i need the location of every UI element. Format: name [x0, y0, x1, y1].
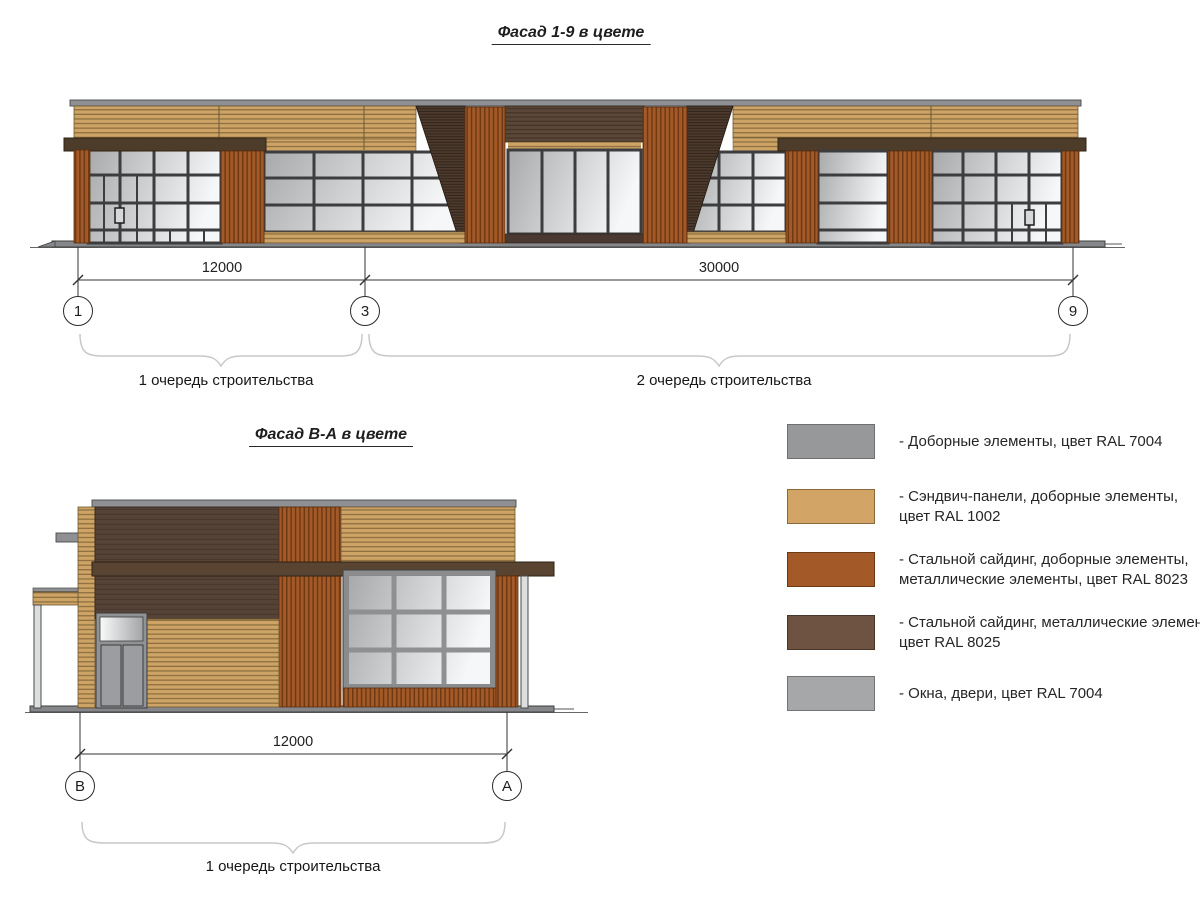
legend-row-ral8025: - Стальной сайдинг, металлические элемен…: [787, 613, 1200, 652]
legend-swatch-ral8023: [787, 552, 875, 587]
left-canopy: [33, 588, 78, 708]
legend-swatch-windows-ral7004: [787, 676, 875, 711]
big-window: [343, 570, 496, 690]
legend-swatch-ral1002: [787, 489, 875, 524]
legend-row-ral8023: - Стальной сайдинг, доборные элементы, м…: [787, 550, 1189, 589]
legend-label: металлические элементы, цвет RAL 8023: [899, 570, 1189, 590]
facade-b-a-elevation: [25, 500, 588, 713]
grid-axis-bubble-1: 1: [63, 296, 93, 326]
dimension-30000-main: 30000: [699, 260, 739, 276]
phase-1-label-side: 1 очередь строительства: [206, 858, 381, 875]
facade-side-title: Фасад В-А в цвете: [249, 426, 413, 447]
page: { "titles": { "facade_main": "Фасад 1-9 …: [0, 0, 1200, 900]
grid-axis-bubble-9: 9: [1058, 296, 1088, 326]
phase-brace-facade-2: [82, 822, 505, 853]
legend-label: - Стальной сайдинг, доборные элементы,: [899, 550, 1189, 570]
legend-swatch-ral8025: [787, 615, 875, 650]
canopy-left: [64, 138, 266, 151]
legend-row-windows-ral7004: - Окна, двери, цвет RAL 7004: [787, 676, 1103, 711]
facade-1-9-elevation: [30, 100, 1125, 248]
phase-1-label-main: 1 очередь строительства: [139, 372, 314, 389]
dimension-12000-side: 12000: [273, 734, 313, 750]
legend-row-ral1002: - Сэндвич-панели, доборные элементы, цве…: [787, 487, 1178, 526]
door-handle-right: [1025, 210, 1034, 225]
facade-main-title: Фасад 1-9 в цвете: [492, 24, 651, 45]
phase-2-label-main: 2 очередь строительства: [637, 372, 812, 389]
entrance-door: [96, 613, 147, 708]
legend-label: цвет RAL 1002: [899, 507, 1178, 527]
legend-label: - Доборные элементы, цвет RAL 7004: [899, 432, 1162, 452]
legend-label: - Стальной сайдинг, металлические элемен…: [899, 613, 1200, 633]
door-handle-left: [115, 208, 124, 223]
dimension-12000-main: 12000: [202, 260, 242, 276]
legend-label: - Сэндвич-панели, доборные элементы,: [899, 487, 1178, 507]
phase-braces-facade-1: [80, 334, 1070, 366]
grid-axis-bubble-a: А: [492, 771, 522, 801]
legend-row-ral7004: - Доборные элементы, цвет RAL 7004: [787, 424, 1162, 459]
grid-axis-bubble-b: В: [65, 771, 95, 801]
canopy-right: [778, 138, 1086, 151]
legend-label: цвет RAL 8025: [899, 633, 1200, 653]
grid-axis-bubble-3: 3: [350, 296, 380, 326]
legend-label: - Окна, двери, цвет RAL 7004: [899, 684, 1103, 704]
legend-swatch-ral7004: [787, 424, 875, 459]
